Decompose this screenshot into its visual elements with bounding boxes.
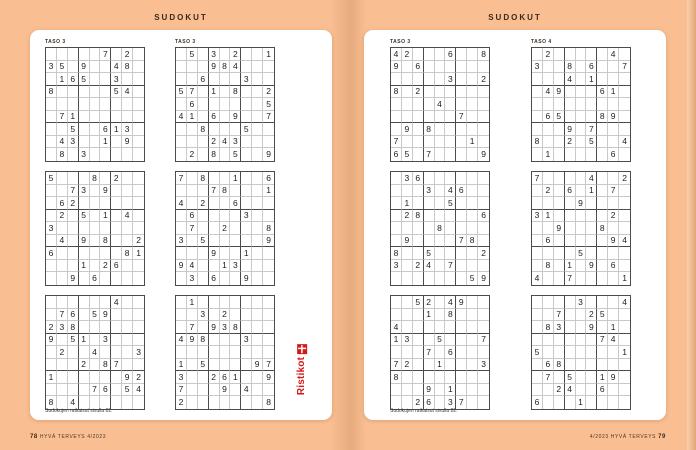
sudoku-cell: 9 — [209, 61, 220, 74]
sudoku-cell — [220, 98, 231, 111]
sudoku-cell — [467, 148, 478, 161]
sudoku-cell — [391, 272, 402, 285]
sudoku-cell: 3 — [532, 61, 543, 74]
grid-difficulty-label: TASO 3 — [175, 39, 273, 47]
sudoku-cell — [445, 136, 456, 149]
sudoku-cell: 2 — [187, 148, 198, 161]
sudoku-cell — [532, 73, 543, 86]
sudoku-cell — [413, 48, 424, 61]
sudoku-cell: 1 — [467, 136, 478, 149]
sudoku-cell — [402, 296, 413, 309]
sudoku-cell — [176, 148, 187, 161]
sudoku-cell — [176, 98, 187, 111]
sudoku-cell: 3 — [478, 359, 489, 372]
sudoku-cell — [435, 235, 446, 248]
sudoku-cell: 9 — [554, 86, 565, 99]
sudoku-cell — [176, 346, 187, 359]
sudoku-cell — [90, 98, 101, 111]
sudoku-cell — [391, 309, 402, 322]
sudoku-cell: 5 — [565, 371, 576, 384]
sudoku-cell: 6 — [90, 272, 101, 285]
sudoku-cell — [467, 86, 478, 99]
sudoku-cell — [608, 136, 619, 149]
sudoku-cell — [241, 86, 252, 99]
sudoku-cell: 8 — [263, 222, 274, 235]
sudoku-cell: 4 — [176, 334, 187, 347]
sudoku-cell — [391, 197, 402, 210]
sudoku-cell — [90, 334, 101, 347]
sudoku-cell — [608, 272, 619, 285]
sudoku-cell — [252, 73, 263, 86]
sudoku-cell: 6 — [111, 260, 122, 273]
sudoku-cell — [565, 48, 576, 61]
sudoku-cell — [402, 222, 413, 235]
sudoku-cell — [198, 321, 209, 334]
sudoku-cell — [198, 260, 209, 273]
sudoku-cell — [252, 136, 263, 149]
sudoku-cell: 6 — [100, 123, 111, 136]
sudoku-cell — [241, 359, 252, 372]
sudoku-cell: 7 — [424, 346, 435, 359]
sudoku-cell: 7 — [424, 148, 435, 161]
sudoku-cell — [456, 172, 467, 185]
sudoku-cell: 8 — [478, 48, 489, 61]
sudoku-cell — [543, 384, 554, 397]
sudoku-cell — [391, 185, 402, 198]
sudoku-cell — [576, 359, 587, 372]
sudoku-cell — [90, 371, 101, 384]
sudoku-cell: 1 — [68, 111, 79, 124]
sudoku-cell — [456, 359, 467, 372]
sudoku-cell — [435, 272, 446, 285]
sudoku-cell — [111, 148, 122, 161]
sudoku-cell — [176, 123, 187, 136]
sudoku-cell — [478, 86, 489, 99]
sudoku-cell — [576, 185, 587, 198]
sudoku-cell — [565, 321, 576, 334]
sudoku-cell — [597, 247, 608, 260]
sudoku-cell — [241, 197, 252, 210]
sudoku-cell — [391, 222, 402, 235]
sudoku-cell — [413, 272, 424, 285]
sudoku-cell: 7 — [608, 185, 619, 198]
sudoku-cell — [597, 235, 608, 248]
sudoku-cell — [413, 136, 424, 149]
sudoku-cell: 7 — [445, 260, 456, 273]
sudoku-cell: 3 — [176, 371, 187, 384]
sudoku-cell — [608, 123, 619, 136]
sudoku-cell — [576, 123, 587, 136]
sudoku-cell — [133, 334, 144, 347]
sudoku-cell — [597, 48, 608, 61]
sudoku-cell: 6 — [209, 111, 220, 124]
sudoku-cell — [187, 247, 198, 260]
sudoku-cell — [90, 247, 101, 260]
sudoku-cell — [435, 309, 446, 322]
sudoku-cell — [478, 185, 489, 198]
sudoku-cell: 6 — [391, 148, 402, 161]
sudoku-cell — [619, 210, 630, 223]
sudoku-cell: 8 — [230, 321, 241, 334]
sudoku-cell — [100, 61, 111, 74]
grid-difficulty-label — [175, 163, 273, 171]
sudoku-cell — [456, 148, 467, 161]
sudoku-cell — [241, 111, 252, 124]
sudoku-cell — [263, 210, 274, 223]
sudoku-cell — [435, 384, 446, 397]
sudoku-cell: 8 — [424, 123, 435, 136]
sudoku-cell — [456, 309, 467, 322]
sudoku-cell: 8 — [565, 61, 576, 74]
sudoku-slot: 36346152868978852324759 — [390, 163, 488, 286]
sudoku-cell — [456, 73, 467, 86]
sudoku-cell — [90, 260, 101, 273]
sudoku-cell — [554, 235, 565, 248]
sudoku-cell — [597, 185, 608, 198]
sudoku-cell: 6 — [68, 309, 79, 322]
sudoku-cell — [424, 210, 435, 223]
sudoku-cell: 2 — [46, 321, 57, 334]
sudoku-cell — [220, 272, 231, 285]
sudoku-cell: 9 — [187, 334, 198, 347]
sudoku-cell: 9 — [68, 272, 79, 285]
sudoku-cell: 1 — [79, 334, 90, 347]
sudoku-cell: 7 — [209, 185, 220, 198]
sudoku-cell: 4 — [133, 384, 144, 397]
sudoku-cell — [263, 321, 274, 334]
sudoku-cell — [230, 210, 241, 223]
sudoku-cell: 1 — [608, 321, 619, 334]
sudoku-cell — [402, 136, 413, 149]
sudoku-cell — [608, 73, 619, 86]
sudoku-cell — [111, 247, 122, 260]
sudoku-cell — [122, 346, 133, 359]
sudoku-cell — [619, 111, 630, 124]
sudoku-cell — [478, 222, 489, 235]
sudoku-cell: 4 — [543, 86, 554, 99]
sudoku-cell: 6 — [478, 210, 489, 223]
sudoku-cell — [445, 235, 456, 248]
sudoku-cell — [445, 334, 456, 347]
sudoku-grid: 347258391745168751924661 — [531, 295, 631, 410]
sudoku-cell: 8 — [122, 247, 133, 260]
sudoku-cell: 2 — [198, 197, 209, 210]
sudoku-cell — [435, 86, 446, 99]
sudoku-cell — [619, 222, 630, 235]
sudoku-cell: 6 — [608, 148, 619, 161]
sudoku-cell — [100, 148, 111, 161]
sudoku-cell — [133, 48, 144, 61]
sudoku-cell — [554, 396, 565, 409]
sudoku-cell — [532, 359, 543, 372]
sudoku-cell: 5 — [90, 309, 101, 322]
sudoku-cell: 1 — [111, 123, 122, 136]
sudoku-cell: 4 — [111, 61, 122, 74]
sudoku-cell: 3 — [241, 73, 252, 86]
sudoku-cell — [209, 346, 220, 359]
sudoku-cell: 6 — [46, 247, 57, 260]
sudoku-cell — [252, 172, 263, 185]
sudoku-cell — [435, 111, 446, 124]
sudoku-cell — [122, 296, 133, 309]
sudoku-cell: 9 — [576, 197, 587, 210]
sudoku-cell — [68, 210, 79, 223]
sudoku-cell — [543, 296, 554, 309]
sudoku-cell — [608, 396, 619, 409]
sudoku-cell: 5 — [68, 123, 79, 136]
sudoku-cell — [230, 334, 241, 347]
sudoku-cell — [532, 48, 543, 61]
sudoku-cell — [424, 73, 435, 86]
sudoku-grid: 243867414961658997825416 — [531, 47, 631, 162]
sudoku-cell — [252, 197, 263, 210]
sudoku-grid: 72359481653854715613431983 — [45, 47, 145, 162]
magazine-spread: SUDOKUT SUDOKUT TASO 3 72359481653854715… — [0, 0, 696, 450]
sudoku-cell — [220, 210, 231, 223]
sudoku-cell — [220, 396, 231, 409]
sudoku-cell — [90, 148, 101, 161]
sudoku-cell — [413, 334, 424, 347]
sudoku-cell — [576, 73, 587, 86]
sudoku-cell — [435, 296, 446, 309]
sudoku-cell: 3 — [402, 172, 413, 185]
sudoku-cell — [100, 98, 111, 111]
sudoku-cell — [424, 61, 435, 74]
sudoku-cell — [424, 235, 435, 248]
sudoku-cell — [252, 309, 263, 322]
sudoku-cell: 9 — [608, 111, 619, 124]
sudoku-cell: 3 — [133, 346, 144, 359]
sudoku-cell — [456, 61, 467, 74]
sudoku-cell — [122, 185, 133, 198]
sudoku-cell — [586, 235, 597, 248]
sudoku-cell — [413, 73, 424, 86]
sudoku-cell: 5 — [111, 86, 122, 99]
sudoku-cell: 3 — [111, 73, 122, 86]
sudoku-cell — [57, 359, 68, 372]
sudoku-cell: 6 — [532, 396, 543, 409]
sudoku-cell — [46, 148, 57, 161]
page-edge-shadow — [687, 0, 696, 450]
sudoku-cell: 2 — [586, 309, 597, 322]
sudoku-cell — [576, 222, 587, 235]
sudoku-cell: 1 — [565, 260, 576, 273]
sudoku-cell: 9 — [565, 123, 576, 136]
sudoku-cell — [554, 247, 565, 260]
sudoku-cell — [230, 384, 241, 397]
sudoku-cell: 1 — [586, 185, 597, 198]
sudoku-cell: 2 — [413, 86, 424, 99]
sudoku-cell — [90, 321, 101, 334]
sudoku-cell: 3 — [241, 210, 252, 223]
sudoku-cell — [46, 359, 57, 372]
sudoku-cell — [467, 172, 478, 185]
sudoku-cell — [111, 136, 122, 149]
sudoku-cell: 7 — [478, 334, 489, 347]
sudoku-cell: 3 — [46, 222, 57, 235]
sudoku-cell — [57, 86, 68, 99]
sudoku-cell — [252, 247, 263, 260]
grid-difficulty-label — [175, 287, 273, 295]
sudoku-cell — [133, 61, 144, 74]
sudoku-cell — [209, 296, 220, 309]
grid-difficulty-label: TASO 3 — [390, 39, 488, 47]
sudoku-cell — [252, 123, 263, 136]
sudoku-cell — [122, 396, 133, 409]
sudoku-cell: 7 — [456, 235, 467, 248]
sudoku-cell — [619, 123, 630, 136]
sudoku-cell: 4 — [122, 86, 133, 99]
sudoku-cell — [241, 148, 252, 161]
sudoku-cell: 5 — [57, 61, 68, 74]
sudoku-cell: 6 — [230, 197, 241, 210]
sudoku-cell: 1 — [100, 210, 111, 223]
sudoku-cell — [230, 185, 241, 198]
sudoku-cell — [424, 111, 435, 124]
sudoku-cell — [198, 98, 209, 111]
sudoku-cell: 4 — [230, 61, 241, 74]
sudoku-cell — [133, 321, 144, 334]
sudoku-cell — [597, 73, 608, 86]
sudoku-cell — [57, 260, 68, 273]
sudoku-cell — [46, 48, 57, 61]
sudoku-cell — [209, 359, 220, 372]
sudoku-cell — [435, 185, 446, 198]
sudoku-cell: 4 — [608, 334, 619, 347]
sudoku-cell — [220, 247, 231, 260]
sudoku-cell: 5 — [402, 148, 413, 161]
sudoku-cell — [57, 185, 68, 198]
sudoku-cell — [133, 197, 144, 210]
sudoku-cell — [241, 396, 252, 409]
sudoku-cell — [57, 172, 68, 185]
sudoku-cell: 6 — [187, 210, 198, 223]
sudoku-cell: 9 — [100, 309, 111, 322]
sudoku-cell — [435, 371, 446, 384]
sudoku-cell — [90, 185, 101, 198]
sudoku-cell — [241, 321, 252, 334]
sudoku-cell — [543, 346, 554, 359]
sudoku-cell: 1 — [619, 272, 630, 285]
sudoku-cell — [619, 197, 630, 210]
sudoku-cell — [252, 210, 263, 223]
sudoku-cell: 3 — [68, 136, 79, 149]
sudoku-cell: 8 — [543, 260, 554, 273]
sudoku-cell — [565, 172, 576, 185]
sudoku-cell: 8 — [391, 247, 402, 260]
sudoku-cell — [252, 272, 263, 285]
sudoku-cell — [263, 309, 274, 322]
sudoku-cell: 3 — [554, 321, 565, 334]
sudoku-cell — [252, 235, 263, 248]
sudoku-cell — [133, 309, 144, 322]
sudoku-slot: TASO 3 42689632824798716579 — [390, 39, 488, 162]
sudoku-cell — [198, 48, 209, 61]
sudoku-cell: 5 — [68, 334, 79, 347]
sudoku-cell — [68, 172, 79, 185]
sudoku-cell — [133, 260, 144, 273]
sudoku-cell — [122, 321, 133, 334]
sudoku-cell — [241, 296, 252, 309]
sudoku-cell — [241, 172, 252, 185]
sudoku-cell — [435, 210, 446, 223]
sudoku-cell — [478, 396, 489, 409]
sudoku-cell — [391, 346, 402, 359]
sudoku-cell — [230, 247, 241, 260]
sudoku-cell — [79, 48, 90, 61]
sudoku-cell — [608, 384, 619, 397]
sudoku-cell: 8 — [68, 321, 79, 334]
sudoku-cell: 9 — [586, 321, 597, 334]
sudoku-cell: 7 — [391, 136, 402, 149]
sudoku-cell — [46, 309, 57, 322]
page-number-left: 78 — [30, 434, 38, 440]
sudoku-cell: 8 — [46, 86, 57, 99]
sudoku-cell — [435, 247, 446, 260]
sudoku-cell — [445, 321, 456, 334]
sudoku-cell: 9 — [478, 148, 489, 161]
sudoku-cell: 3 — [176, 235, 187, 248]
solutions-note: Sudokujen ratkaisut sivulla 82. — [390, 408, 458, 414]
sudoku-cell — [565, 98, 576, 111]
sudoku-cell: 1 — [187, 296, 198, 309]
sudoku-cell — [597, 321, 608, 334]
sudoku-cell — [597, 296, 608, 309]
sudoku-cell: 6 — [543, 235, 554, 248]
sudoku-cell — [187, 309, 198, 322]
sudoku-cell — [46, 210, 57, 223]
sudoku-cell — [209, 260, 220, 273]
sudoku-cell — [220, 334, 231, 347]
sudoku-cell — [456, 260, 467, 273]
sudoku-cell: 9 — [391, 61, 402, 74]
sudoku-cell — [263, 136, 274, 149]
sudoku-cell — [391, 210, 402, 223]
sudoku-cell: 1 — [402, 197, 413, 210]
sudoku-cell: 3 — [532, 210, 543, 223]
sudoku-cell — [263, 247, 274, 260]
sudoku-cell — [230, 73, 241, 86]
sudoku-cell — [133, 222, 144, 235]
sudoku-cell — [532, 98, 543, 111]
page-title-right: SUDOKUT — [364, 13, 666, 22]
sudoku-cell — [57, 384, 68, 397]
sudoku-cell — [111, 235, 122, 248]
sudoku-grid: 5827396225143498268112696 — [45, 171, 145, 286]
sudoku-cell: 9 — [252, 359, 263, 372]
sudoku-cell — [100, 321, 111, 334]
sudoku-cell — [176, 247, 187, 260]
sudoku-cell: 3 — [122, 123, 133, 136]
sudoku-cell: 1 — [46, 371, 57, 384]
sudoku-cell: 7 — [543, 371, 554, 384]
sudoku-slot: 781678142663728359919413369 — [175, 163, 273, 286]
sudoku-cell — [263, 73, 274, 86]
sudoku-cell — [176, 61, 187, 74]
sudoku-cell — [424, 136, 435, 149]
sudoku-cell — [554, 73, 565, 86]
sudoku-cell — [187, 346, 198, 359]
sudoku-cell — [209, 210, 220, 223]
sudoku-cell — [543, 396, 554, 409]
sudoku-cell — [576, 148, 587, 161]
sudoku-cell — [435, 197, 446, 210]
sudoku-cell — [252, 396, 263, 409]
sudoku-cell — [176, 185, 187, 198]
sudoku-cell: 4 — [619, 235, 630, 248]
sudoku-cell: 9 — [402, 235, 413, 248]
sudoku-cell — [413, 185, 424, 198]
